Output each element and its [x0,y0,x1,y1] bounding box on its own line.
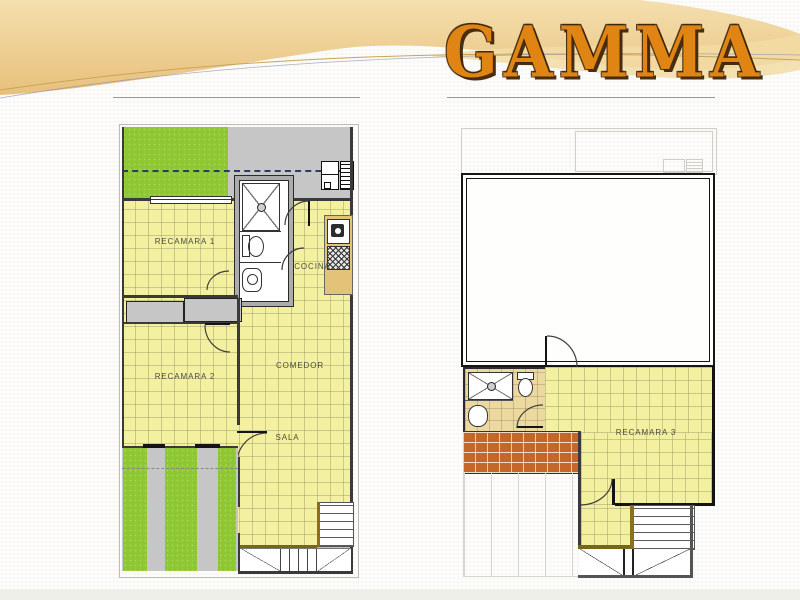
door-arc-icon-cocina [285,201,309,225]
stairs-icon [317,502,354,547]
kitchen-sink-icon [327,219,350,244]
separator-line-left [113,97,360,98]
open-room [461,173,715,367]
page-title: GAMMA [444,17,765,88]
step-diagonal-right [318,548,351,571]
open-room-inner-wall [466,178,710,362]
wall-stub-recamara3 [612,479,615,505]
step-bars [280,548,318,571]
window-line [151,199,231,200]
step-top-line [240,548,351,549]
toilet-icon [248,236,264,257]
brick-roof [463,431,578,474]
property-dashed-line [122,170,352,172]
slide: GAMMA [0,0,800,600]
door-arc-icon-recamara3 [580,479,612,505]
fridge-divider [322,174,338,175]
basin-circle [335,228,341,234]
ghost-fridge-icon [663,159,685,173]
room-label-recamara3: RECAMARA 3 [586,428,706,437]
corridor-floor [581,505,630,548]
door-arc-icon-open-room [547,336,577,367]
bath-divider [239,231,281,232]
landing-diagonal-right [636,549,690,575]
closet-left [126,301,184,323]
fridge-detail [324,182,331,189]
wall-recamara3-right [712,367,715,506]
grass-strip-2 [165,448,197,571]
upper-floor-plan: RECAMARA 3 [461,128,717,578]
wall-stairblock-right [690,505,693,577]
room-label-recamara2: RECAMARA 2 [130,372,240,381]
shower-drain [257,203,266,212]
landing-bar-1 [623,549,625,575]
wall-hall-upper [237,298,240,425]
wall-bottom [238,571,353,574]
door-leaf-recamara2 [205,323,230,325]
sink-icon-2 [468,405,488,427]
separator-line-right [447,97,715,98]
front-garden [122,127,228,198]
room-label-comedor: COMEDOR [260,361,340,370]
ghost-vent-icon [686,159,703,173]
door-leaf-bath2 [517,426,543,428]
ghost-roof-below [463,472,579,577]
stair-landing [580,549,690,575]
sink-icon [242,268,262,292]
shower-icon-2 [468,372,513,400]
shower-drain-2 [487,382,496,391]
bath-divider-2 [239,262,281,263]
door-arc-icon-recamara2 [205,325,230,352]
toilet-icon-2 [518,378,533,397]
step-diagonal-left [240,548,280,571]
kitchen-counter [324,215,353,295]
bath2-divider [465,400,513,401]
room-label-sala: SALA [260,433,315,442]
bathroom-1 [235,176,293,306]
room-label-recamara1: RECAMARA 1 [130,237,240,246]
door-arc-icon-bath2 [517,405,543,428]
landing-diagonal-left [580,549,622,575]
fridge-icon [321,161,339,190]
driveway-dashed-line [122,468,238,469]
bathroom-2 [463,367,549,435]
window-icon [150,196,232,204]
entry-steps [240,548,351,571]
shower-icon [242,183,280,231]
recamara3-floor-upper [545,367,715,433]
grass-strip-3 [218,448,236,571]
grass-strip-1 [123,448,147,571]
closet-right [184,298,242,322]
door-arc-icon-recamara1 [207,271,229,290]
room-label-cocina: COCINA [280,262,345,271]
wall-landing-bottom [578,575,693,578]
bottom-band [0,589,800,600]
door-leaf-cocina [308,201,310,226]
driveway [122,448,238,571]
stairs-icon-2 [630,505,695,550]
sink-basin [247,274,258,285]
landing-bar-2 [632,549,634,575]
ground-floor-plan: RECAMARA 1 COCINA RECAMARA 2 COMEDOR SAL… [119,124,359,578]
